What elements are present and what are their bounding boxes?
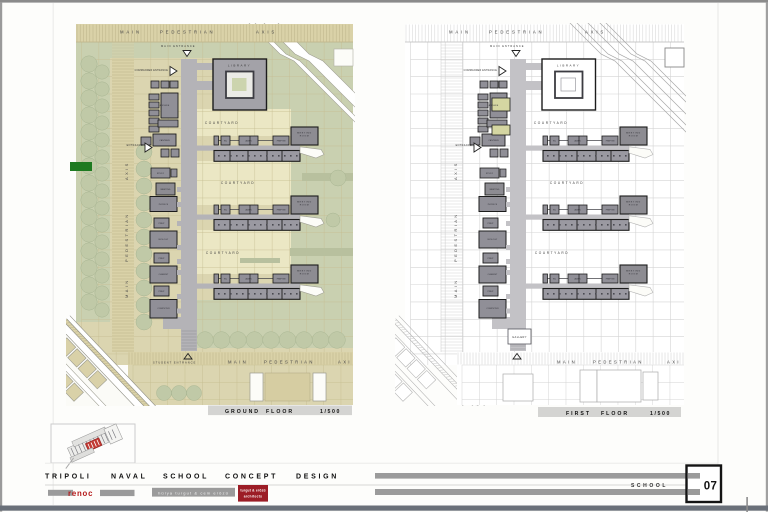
svg-text:COMMANDER ENTRANCE: COMMANDER ENTRANCE [464, 69, 498, 72]
svg-text:AXIS: AXIS [124, 161, 129, 180]
svg-text:COURTYARD: COURTYARD [206, 251, 240, 255]
svg-text:MEETING: MEETING [626, 202, 641, 204]
svg-text:MEETING: MEETING [297, 133, 312, 135]
svg-text:ROOM: ROOM [300, 274, 310, 276]
svg-text:MAIN: MAIN [453, 278, 458, 298]
svg-text:PREP: PREP [488, 223, 494, 225]
svg-text:PREP: PREP [488, 258, 494, 260]
svg-text:PREP: PREP [159, 258, 165, 260]
svg-text:MAIN: MAIN [120, 30, 142, 35]
svg-text:GALLERY: GALLERY [512, 335, 527, 339]
svg-text:hülya turgut & cem erözü: hülya turgut & cem erözü [158, 490, 229, 495]
svg-text:ROOM: ROOM [300, 136, 310, 138]
svg-text:BIOLOGY: BIOLOGY [159, 239, 169, 241]
svg-text:PREP RM: PREP RM [606, 141, 615, 143]
svg-text:CANTEEN: CANTEEN [159, 139, 170, 142]
svg-text:PEDESTRIAN: PEDESTRIAN [264, 359, 315, 364]
svg-text:COMPUTER: COMPUTER [157, 308, 170, 310]
svg-text:MEETING: MEETING [626, 133, 641, 135]
svg-text:TRIPOLI: TRIPOLI [45, 473, 92, 480]
svg-text:PHYSICS: PHYSICS [488, 204, 498, 206]
svg-text:COURTYARD: COURTYARD [205, 121, 239, 125]
svg-text:ARCHIVE: ARCHIVE [160, 104, 170, 107]
svg-text:PEDESTRIAN: PEDESTRIAN [453, 212, 458, 262]
svg-text:PREP: PREP [488, 291, 494, 293]
svg-text:PREP: PREP [159, 223, 165, 225]
svg-text:PEDESTRIAN: PEDESTRIAN [593, 359, 644, 364]
svg-text:STUDY: STUDY [157, 173, 165, 175]
svg-text:MAIN: MAIN [557, 359, 577, 364]
svg-text:AXIS: AXIS [256, 30, 277, 35]
svg-text:BIOLOGY: BIOLOGY [488, 239, 498, 241]
svg-text:ENTRANCE: ENTRANCE [456, 144, 472, 147]
svg-text:MEETING: MEETING [297, 202, 312, 204]
svg-text:MEETING: MEETING [490, 189, 500, 191]
svg-text:ADMIN: ADMIN [245, 209, 252, 212]
svg-text:CANTEEN: CANTEEN [488, 139, 499, 142]
svg-text:CONCEPT: CONCEPT [225, 473, 278, 480]
svg-text:MEETING: MEETING [297, 271, 312, 273]
svg-text:LIBRARY: LIBRARY [228, 64, 251, 68]
svg-text:AXIS: AXIS [585, 30, 606, 35]
svg-text:COURTYARD: COURTYARD [535, 251, 569, 255]
svg-text:AXIS: AXIS [453, 161, 458, 180]
svg-text:PREP RM: PREP RM [277, 210, 286, 212]
svg-text:COURTYARD: COURTYARD [534, 121, 568, 125]
svg-text:MAIN ENTRANCE: MAIN ENTRANCE [161, 44, 195, 48]
svg-text:NAVAL: NAVAL [111, 473, 148, 480]
svg-text:DESIGN: DESIGN [296, 473, 339, 480]
svg-text:ADMIN: ADMIN [574, 209, 581, 212]
svg-text:MEETING: MEETING [626, 271, 641, 273]
svg-text:PHYSICS: PHYSICS [159, 204, 169, 206]
svg-text:FLOOR: FLOOR [266, 409, 294, 415]
svg-text:COURTYARD: COURTYARD [221, 181, 255, 185]
svg-text:ROOM: ROOM [629, 274, 639, 276]
svg-text:MAIN: MAIN [124, 278, 129, 298]
svg-text:07: 07 [704, 481, 718, 493]
svg-text:MAIN ENTRANCE: MAIN ENTRANCE [490, 44, 524, 48]
svg-text:ADMIN: ADMIN [245, 140, 252, 143]
svg-text:COMMANDER ENTRANCE: COMMANDER ENTRANCE [135, 69, 169, 72]
svg-text:ROOM: ROOM [629, 136, 639, 138]
svg-text:renoc: renoc [68, 489, 93, 498]
svg-text:ADMIN: ADMIN [245, 278, 252, 281]
svg-text:PEDESTRIAN: PEDESTRIAN [160, 30, 215, 35]
svg-text:STUDY: STUDY [486, 173, 494, 175]
svg-text:AXI: AXI [667, 359, 681, 364]
svg-text:SCHOOL: SCHOOL [163, 473, 209, 480]
svg-text:PEDESTRIAN: PEDESTRIAN [489, 30, 544, 35]
svg-text:CHEMIST: CHEMIST [488, 274, 498, 276]
svg-text:ARCHIVE: ARCHIVE [489, 104, 499, 107]
svg-text:MAIN: MAIN [449, 30, 471, 35]
svg-text:architects: architects [244, 494, 263, 498]
svg-text:ENTRANCE: ENTRANCE [127, 144, 143, 147]
svg-text:FLOOR: FLOOR [601, 411, 629, 417]
svg-text:PREP: PREP [159, 291, 165, 293]
svg-text:PREP RM: PREP RM [277, 279, 286, 281]
svg-text:PEDESTRIAN: PEDESTRIAN [124, 212, 129, 262]
svg-text:1/500: 1/500 [320, 409, 341, 415]
svg-text:COMPUTER: COMPUTER [486, 308, 499, 310]
svg-text:CHEMIST: CHEMIST [159, 274, 169, 276]
svg-text:GROUND: GROUND [225, 409, 260, 415]
svg-text:turgut & erözü: turgut & erözü [240, 488, 265, 492]
svg-text:PREP RM: PREP RM [606, 279, 615, 281]
svg-text:FIRST: FIRST [566, 411, 591, 417]
svg-text:ADMIN: ADMIN [574, 140, 581, 143]
svg-text:AXI: AXI [338, 359, 352, 364]
svg-text:ADMIN: ADMIN [574, 278, 581, 281]
svg-text:1/500: 1/500 [650, 411, 671, 417]
svg-text:SCHOOL: SCHOOL [631, 483, 668, 489]
svg-text:MEETING: MEETING [161, 189, 171, 191]
svg-text:PREP RM: PREP RM [277, 141, 286, 143]
svg-text:MAIN: MAIN [228, 359, 248, 364]
svg-text:PREP RM: PREP RM [606, 210, 615, 212]
svg-text:STUDENT ENTRANCE: STUDENT ENTRANCE [153, 360, 196, 364]
svg-text:ROOM: ROOM [629, 205, 639, 207]
svg-text:ROOM: ROOM [300, 205, 310, 207]
svg-text:COURTYARD: COURTYARD [550, 181, 584, 185]
svg-text:LIBRARY: LIBRARY [557, 64, 580, 68]
